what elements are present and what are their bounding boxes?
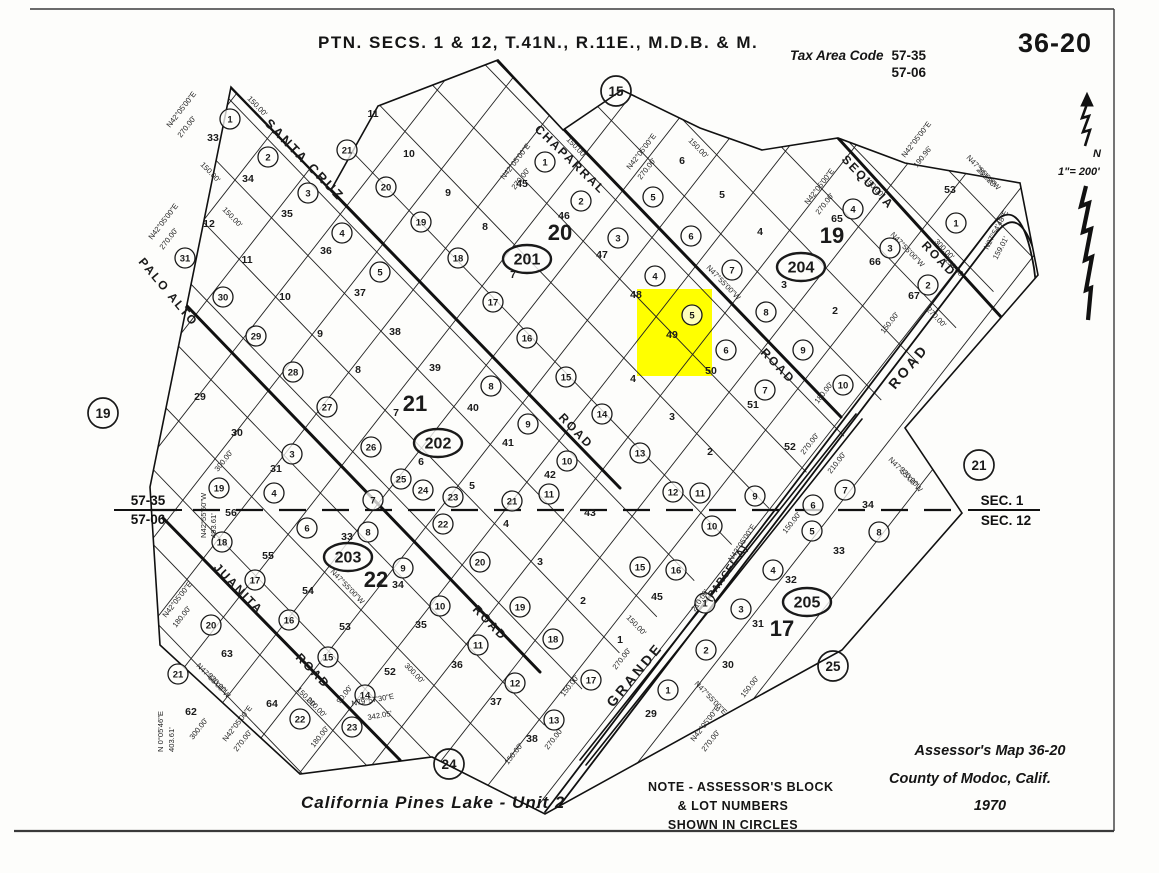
lot-number: 11 [367,108,378,120]
dimension-label: 150.00' [221,205,245,229]
svg-text:204: 204 [788,260,815,277]
svg-text:1: 1 [227,114,233,125]
svg-text:9: 9 [400,563,405,574]
lot-circle: 31 [175,248,195,268]
dimension-label: 270.00' [898,465,922,489]
lot-circle: 22 [290,709,310,729]
north-arrow [1081,93,1093,320]
svg-text:13: 13 [549,715,560,726]
lot-circle: 4 [763,560,783,580]
svg-text:2: 2 [578,196,583,207]
svg-text:22: 22 [438,519,449,530]
lot-circle: 18 [543,629,563,649]
lot-number: 54 [302,585,314,597]
lot-number: 41 [502,437,514,449]
lot-circle: 4 [843,199,863,219]
lot-circle: 23 [342,717,362,737]
lot-circle: 24 [413,480,433,500]
lot-number: 38 [389,326,401,338]
svg-text:3: 3 [305,188,310,199]
lot-circle: 6 [681,226,701,246]
lot-number: 32 [785,574,797,586]
lot-number: 2 [580,595,586,607]
svg-text:21: 21 [971,458,987,473]
lot-circle: 26 [361,437,381,457]
dimension-label: 150.00' [780,510,803,535]
lot-number: 29 [194,391,206,403]
svg-text:57-06: 57-06 [131,512,166,527]
svg-text:10: 10 [838,380,849,391]
attribution-line-1: Assessor's Map 36-20 [870,738,1110,766]
svg-text:5: 5 [377,267,383,278]
lot-number: 1 [617,634,623,646]
lot-circle: 19 [411,212,431,232]
note-line-3: SHOWN IN CIRCLES [648,816,818,835]
svg-text:17: 17 [488,297,499,308]
lot-circle: 1 [658,680,678,700]
svg-text:30: 30 [218,292,229,303]
lot-number: 42 [544,469,556,481]
lot-number: 38 [526,733,538,745]
lot-circle: 21 [168,664,188,684]
lot-number: 33 [833,545,845,557]
lot-number: 8 [355,364,361,376]
svg-text:15: 15 [635,562,646,573]
lot-circle: 10 [430,596,450,616]
svg-text:21: 21 [507,496,518,507]
circled-section-number: 19 [88,398,118,428]
svg-text:25: 25 [396,474,407,485]
svg-text:SEC. 1: SEC. 1 [981,493,1024,508]
lot-number: 35 [415,619,427,631]
svg-text:21: 21 [342,145,353,156]
lot-circle: 8 [481,376,501,396]
svg-text:12: 12 [668,487,679,498]
map-number: 36-20 [1018,28,1092,59]
svg-text:2: 2 [925,280,930,291]
lot-circle: 16 [517,328,537,348]
svg-text:26: 26 [366,442,377,453]
lot-circle: 7 [755,380,775,400]
svg-text:3: 3 [887,243,892,254]
lot-number: 5 [719,189,725,201]
lot-number: 56 [225,507,237,519]
lot-circle: 8 [358,522,378,542]
lot-number: 52 [784,441,796,453]
svg-text:19: 19 [95,406,110,421]
lot-circle: 15 [556,367,576,387]
lot-number: 7 [393,407,399,419]
attribution-line-2: County of Modoc, Calif. [830,766,1110,794]
svg-text:16: 16 [671,565,682,576]
section-number: 19 [820,223,844,248]
svg-text:6: 6 [723,345,728,356]
svg-text:15: 15 [323,652,334,663]
note-line-2: & LOT NUMBERS [648,797,818,816]
lot-number: 3 [537,556,543,568]
svg-text:2: 2 [265,152,270,163]
dimension-label: 150.00' [625,613,649,637]
lot-circle: 15 [318,647,338,667]
dimension-label: 342.05' [367,709,393,722]
svg-text:5: 5 [809,526,815,537]
svg-text:20: 20 [475,557,486,568]
lot-circle: 19 [510,597,530,617]
lot-circle: 28 [283,362,303,382]
tax-code-1: 57-35 [892,48,927,65]
svg-text:13: 13 [635,448,646,459]
svg-text:9: 9 [525,419,530,430]
lot-circle: 2 [918,275,938,295]
dimension-label: 270.00' [542,726,565,751]
lot-circle: 10 [557,451,577,471]
dimension-label: 270.00' [206,671,230,695]
lot-circle: 19 [209,478,229,498]
lot-number: 55 [262,550,274,562]
svg-text:6: 6 [688,231,693,242]
svg-text:1: 1 [665,685,671,696]
svg-text:17: 17 [250,575,261,586]
dimension-label: 493.61' [209,513,218,538]
lot-number: 9 [445,187,451,199]
lot-number: 53 [339,621,351,633]
svg-text:24: 24 [418,485,429,496]
lot-circle: 20 [376,177,396,197]
svg-text:10: 10 [707,521,718,532]
lot-number: 30 [231,427,243,439]
lot-circle: 27 [317,397,337,417]
lot-circle: 6 [803,495,823,515]
lot-circle: 5 [682,305,702,325]
lot-number: 67 [908,290,920,302]
svg-text:18: 18 [548,634,559,645]
section-number: 22 [364,567,388,592]
svg-text:20: 20 [381,182,392,193]
assessor-note: NOTE - ASSESSOR'S BLOCK & LOT NUMBERS SH… [648,778,818,834]
svg-text:16: 16 [522,333,533,344]
tax-area-code: Tax Area Code 57-35 57-06 [790,48,926,82]
dimension-label: 150.00' [878,310,901,335]
svg-text:31: 31 [180,253,191,264]
svg-text:6: 6 [304,523,309,534]
lot-number: 12 [203,218,215,230]
lot-circle: 13 [630,443,650,463]
svg-text:25: 25 [825,659,841,674]
svg-text:11: 11 [544,489,555,500]
svg-text:20: 20 [206,620,217,631]
svg-text:29: 29 [251,331,262,342]
lot-circle: 6 [297,518,317,538]
svg-text:3: 3 [289,449,294,460]
svg-text:11: 11 [473,640,484,651]
lot-circle: 11 [468,635,488,655]
lot-circle: 12 [663,482,683,502]
svg-text:8: 8 [365,527,370,538]
tax-code-2: 57-06 [892,65,927,82]
svg-text:6: 6 [810,500,815,511]
dimension-label: 150.00' [738,674,761,699]
road-name-label: (PARCEL A) [703,543,750,604]
svg-text:23: 23 [448,492,459,503]
lot-number: 47 [596,249,608,261]
lot-circle: 20 [201,615,221,635]
svg-text:11: 11 [695,488,706,499]
svg-text:14: 14 [597,409,608,420]
circled-section-number: 24 [434,749,464,779]
svg-text:19: 19 [214,483,225,494]
subdivision-name: California Pines Lake - Unit 2 [301,793,565,813]
lot-circle: 2 [696,640,716,660]
lot-circle: 9 [393,558,413,578]
svg-text:10: 10 [562,456,573,467]
lot-number: 31 [752,618,764,630]
svg-text:7: 7 [762,385,767,396]
dimension-label: 150.00' [502,741,525,766]
lot-circle: 2 [258,147,278,167]
svg-text:15: 15 [608,84,624,99]
svg-text:27: 27 [322,402,333,413]
lot-number: 51 [747,399,759,411]
road-name-label: ROAD [556,410,596,451]
svg-text:24: 24 [441,757,457,772]
svg-text:23: 23 [347,722,358,733]
block-number-ellipse: 204 [777,253,825,281]
lot-circle: 5 [370,262,390,282]
lot-circle: 15 [630,557,650,577]
lot-circle: 30 [213,287,233,307]
lot-circle: 22 [433,514,453,534]
section-number: 17 [770,616,794,641]
lot-number: 49 [666,329,678,341]
svg-text:3: 3 [615,233,620,244]
lot-number: 10 [279,291,291,303]
north-label: N [1093,148,1101,160]
svg-text:22: 22 [295,714,306,725]
lot-number: 5 [469,480,475,492]
lot-number: 8 [482,221,488,233]
lot-circle: 4 [645,266,665,286]
svg-text:7: 7 [370,495,375,506]
dimension-label: N47°55'00"W [329,567,367,606]
lot-number: 45 [651,591,663,603]
lot-number: 36 [320,245,332,257]
lot-circle: 10 [702,516,722,536]
svg-text:3: 3 [738,604,743,615]
lot-circle: 5 [802,521,822,541]
lot-number: 4 [503,518,509,530]
dimension-label: 270.00' [925,305,949,329]
lot-circle: 1 [535,152,555,172]
lot-number: 3 [781,279,787,291]
lot-circle: 16 [279,610,299,630]
lot-number: 52 [384,666,396,678]
assessor-map-page: 57-35 57-06 SEC. 1 SEC. 12 1234521201918… [0,0,1159,873]
tax-area-code-label: Tax Area Code [790,48,884,82]
section-label-left: 57-35 57-06 [114,493,182,527]
lot-number: 10 [403,148,415,160]
svg-text:17: 17 [586,675,597,686]
scale-text: 1"= 200' [1058,166,1100,178]
lot-number: 40 [467,402,479,414]
lot-circle: 11 [539,484,559,504]
lot-number: 50 [705,365,717,377]
lot-number: 6 [418,456,424,468]
lot-number: 62 [185,706,197,718]
svg-text:1: 1 [542,157,548,168]
svg-text:19: 19 [515,602,526,613]
note-line-1: NOTE - ASSESSOR'S BLOCK [648,778,818,797]
lot-circle: 25 [391,469,411,489]
lot-circle: 8 [869,522,889,542]
lot-number: 48 [630,289,642,301]
lot-circle: 11 [690,483,710,503]
lot-circle: 21 [502,491,522,511]
lot-circle: 1 [946,213,966,233]
lot-circle: 3 [731,599,751,619]
lot-circle: 1 [220,109,240,129]
svg-text:205: 205 [794,595,821,612]
lot-circle: 4 [264,483,284,503]
lot-number: 43 [584,507,596,519]
lot-circle: 18 [448,248,468,268]
svg-text:8: 8 [876,527,881,538]
svg-text:21: 21 [173,669,184,680]
section-label-right: SEC. 1 SEC. 12 [968,493,1040,528]
lot-number: 33 [341,531,353,543]
lot-number: 35 [281,208,293,220]
svg-text:7: 7 [729,265,734,276]
dimension-label: N42°55'50"W [199,492,208,538]
lot-number: 3 [669,411,675,423]
svg-text:1: 1 [953,218,959,229]
lot-circle: 6 [716,340,736,360]
svg-text:19: 19 [416,217,427,228]
lot-number: 4 [630,373,636,385]
svg-text:8: 8 [488,381,493,392]
svg-text:201: 201 [514,252,541,269]
lot-circle: 29 [246,326,266,346]
lot-number: 2 [707,446,713,458]
svg-text:4: 4 [652,271,658,282]
lot-circle: 3 [282,444,302,464]
map-attribution: Assessor's Map 36-20 County of Modoc, Ca… [870,738,1110,821]
lot-number: 2 [832,305,838,317]
lot-circle: 7 [363,490,383,510]
lot-circle: 9 [793,340,813,360]
section-number: 21 [403,391,427,416]
svg-text:9: 9 [800,345,805,356]
road-name-label: GRANDE [603,639,666,710]
lot-circle: 20 [470,552,490,572]
lot-number: 29 [645,708,657,720]
svg-text:18: 18 [217,537,228,548]
lot-circle: 3 [608,228,628,248]
lot-number: 37 [354,287,366,299]
block-number-ellipse: 205 [783,588,831,616]
lot-number: 64 [266,698,278,710]
circled-section-number: 15 [601,76,631,106]
svg-text:7: 7 [842,485,847,496]
lot-circle: 17 [581,670,601,690]
lot-number: 4 [757,226,763,238]
lot-circle: 16 [666,560,686,580]
lot-circle: 9 [745,486,765,506]
dimension-label: 403.61' [167,727,176,752]
svg-text:4: 4 [770,565,776,576]
lot-number: 37 [490,696,502,708]
lot-circle: 14 [592,404,612,424]
svg-text:203: 203 [335,550,362,567]
lot-circle: 12 [505,673,525,693]
map-title: PTN. SECS. 1 & 12, T.41N., R.11E., M.D.B… [318,33,758,53]
lot-number: 34 [242,173,254,185]
svg-text:28: 28 [288,367,299,378]
lot-number: 30 [722,659,734,671]
svg-text:16: 16 [284,615,295,626]
attribution-line-3: 1970 [870,793,1110,821]
dimension-label: 300.00' [187,716,210,741]
svg-text:4: 4 [850,204,856,215]
lot-number: 63 [221,648,233,660]
lot-circle: 9 [518,414,538,434]
lot-circle: 3 [298,183,318,203]
svg-text:SEC. 12: SEC. 12 [981,513,1031,528]
lot-circle: 8 [756,302,776,322]
lot-number: 53 [944,184,956,196]
svg-text:5: 5 [650,192,656,203]
svg-text:9: 9 [752,491,757,502]
dimension-label: 300.00' [212,448,235,473]
lot-circle: 10 [833,375,853,395]
lot-number: 31 [270,463,282,475]
lot-number: 34 [862,499,874,511]
svg-text:202: 202 [425,436,452,453]
svg-text:15: 15 [561,372,572,383]
dimension-label: 150.00' [687,136,711,160]
block-number-ellipse: 201 [503,245,551,273]
block-number-ellipse: 202 [414,429,462,457]
svg-text:10: 10 [435,601,446,612]
lot-number: 66 [869,256,881,268]
lot-circle: 21 [337,140,357,160]
lot-circle: 13 [544,710,564,730]
svg-text:12: 12 [510,678,521,689]
section-number: 20 [548,220,572,245]
svg-text:5: 5 [689,310,695,321]
lot-circle: 4 [332,223,352,243]
circled-section-number: 21 [964,450,994,480]
lot-circle: 17 [483,292,503,312]
svg-text:18: 18 [453,253,464,264]
lot-number: 6 [679,155,685,167]
lot-number: 9 [317,328,323,340]
dimension-label: 150.00' [558,673,581,698]
lot-number: 34 [392,579,404,591]
lot-number: 36 [451,659,463,671]
lot-circle: 5 [643,187,663,207]
dimension-label: N 0°05'46"E [156,711,165,752]
svg-text:2: 2 [703,645,708,656]
lot-circle: 2 [571,191,591,211]
svg-text:4: 4 [271,488,277,499]
lot-number: 33 [207,132,219,144]
lot-number: 11 [241,254,252,266]
lot-circle: 23 [443,487,463,507]
svg-text:4: 4 [339,228,345,239]
lot-circle: 7 [835,480,855,500]
lot-number: 39 [429,362,441,374]
svg-text:8: 8 [763,307,768,318]
